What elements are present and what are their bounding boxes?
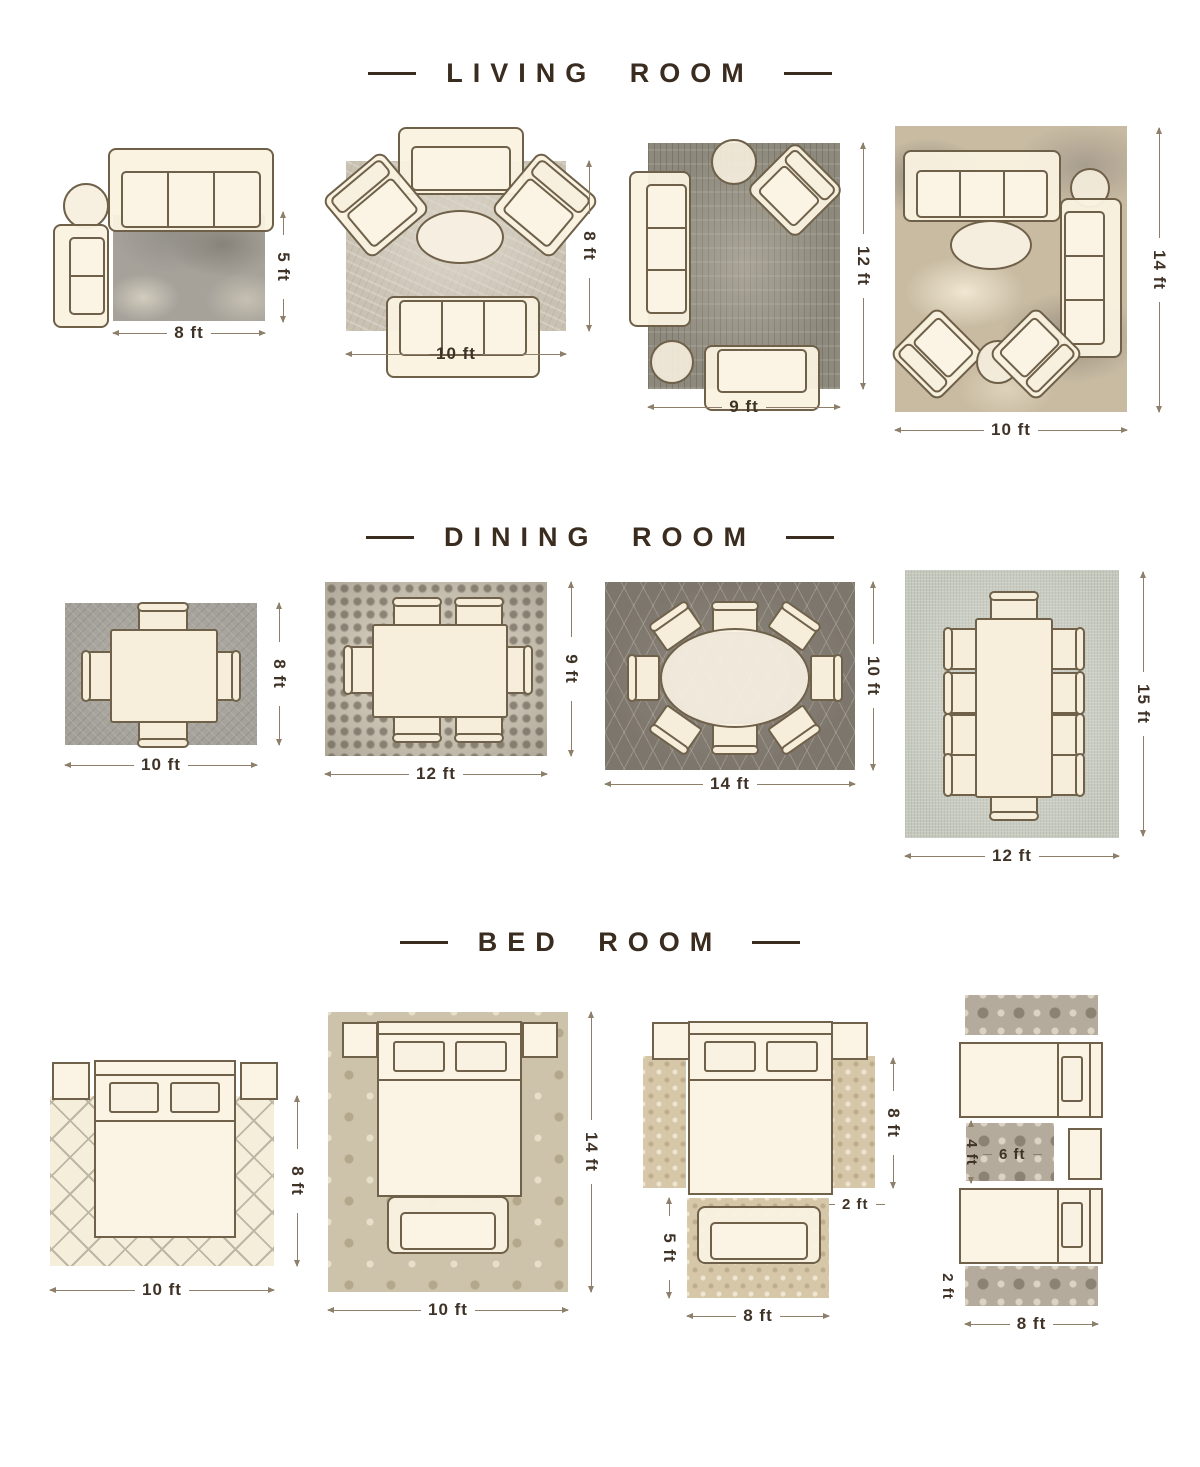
br1-queen-bed xyxy=(94,1060,236,1238)
dr2-dining-table xyxy=(372,624,508,718)
br3-foot-rug-height-dimension: 5 ft xyxy=(658,1198,680,1298)
lr1-two-seat-sofa xyxy=(53,224,109,328)
lr3-width-dimension: 9 ft xyxy=(648,397,840,417)
dr1-dining-table xyxy=(110,629,218,723)
br4-runner-length-dimension: 8 ft xyxy=(965,1314,1098,1334)
dr3-width-dimension: 14 ft xyxy=(605,774,855,794)
br2-height-dimension: 14 ft xyxy=(580,1012,602,1292)
lr4-width-dimension: 10 ft xyxy=(895,420,1127,440)
br3-runner-length-dimension: 8 ft xyxy=(882,1058,904,1188)
dr2-height-dimension: 9 ft xyxy=(560,582,582,756)
lr2-oval-coffee-table xyxy=(416,210,504,264)
br4-twin-bed-bottom xyxy=(959,1188,1103,1264)
lr4-oval-coffee-table xyxy=(950,220,1032,270)
br2-nightstand-right xyxy=(522,1022,558,1058)
title-dash xyxy=(368,72,416,75)
lr2-loveseat xyxy=(398,127,524,195)
lr2-three-seat-sofa xyxy=(386,296,540,378)
lr4-height-dimension: 14 ft xyxy=(1148,128,1170,412)
dr4-width-dimension: 12 ft xyxy=(905,846,1119,866)
br3-side-runner-left xyxy=(643,1056,686,1188)
br3-queen-bed xyxy=(688,1021,833,1195)
dr4-dining-table xyxy=(975,618,1053,798)
br1-height-dimension: 8 ft xyxy=(286,1096,308,1266)
br2-width-dimension: 10 ft xyxy=(328,1300,568,1320)
bed-room-title-row: BED ROOM xyxy=(0,927,1200,958)
br4-between-rug-width-dimension: 6 ft xyxy=(983,1146,1049,1163)
rug-size-guide: LIVING ROOM 8 ft 5 ft 10 ft 8 ft 9 ft 12… xyxy=(0,0,1200,1467)
br2-nightstand-left xyxy=(342,1022,378,1058)
br1-width-dimension: 10 ft xyxy=(50,1280,274,1300)
br3-foot-rug-width-dimension: 8 ft xyxy=(687,1306,829,1326)
lr3-round-side-table-top xyxy=(711,139,757,185)
br3-bench xyxy=(697,1206,821,1264)
title-dash xyxy=(752,941,800,944)
section-title-bed-room: BED ROOM xyxy=(478,927,723,958)
lr1-width-dimension: 8 ft xyxy=(113,323,265,343)
br4-nightstand xyxy=(1068,1128,1102,1180)
lr1-height-dimension: 5 ft xyxy=(272,212,294,322)
dr4-height-dimension: 15 ft xyxy=(1132,572,1154,836)
br4-runner-width-dimension: 2 ft xyxy=(936,1262,958,1310)
dr3-chair-left xyxy=(632,655,660,701)
living-room-title-row: LIVING ROOM xyxy=(0,58,1200,89)
title-dash xyxy=(366,536,414,539)
br2-bench xyxy=(387,1196,509,1254)
title-dash xyxy=(400,941,448,944)
lr4-three-seat-sofa-right xyxy=(1060,198,1122,358)
lr2-height-dimension: 8 ft xyxy=(578,161,600,331)
br4-twin-bed-top xyxy=(959,1042,1103,1118)
section-title-dining-room: DINING ROOM xyxy=(444,522,756,553)
lr3-height-dimension: 12 ft xyxy=(852,143,874,389)
lr3-round-side-table-bottom xyxy=(650,340,694,384)
lr1-three-seat-sofa xyxy=(108,148,274,232)
dr3-oval-dining-table xyxy=(660,628,810,728)
br3-nightstand-right xyxy=(830,1022,868,1060)
br3-side-runner-right xyxy=(832,1056,875,1188)
br1-nightstand-left xyxy=(52,1062,90,1100)
br4-between-rug-height-dimension: 4 ft xyxy=(960,1121,982,1183)
dr2-width-dimension: 12 ft xyxy=(325,764,547,784)
lr2-width-dimension: 10 ft xyxy=(346,344,566,364)
lr4-three-seat-sofa-top xyxy=(903,150,1061,222)
br1-nightstand-right xyxy=(240,1062,278,1100)
dr3-height-dimension: 10 ft xyxy=(862,582,884,770)
dr3-chair-right xyxy=(810,655,838,701)
dr1-width-dimension: 10 ft xyxy=(65,755,257,775)
section-title-living-room: LIVING ROOM xyxy=(446,58,754,89)
br3-runner-width-dimension: 2 ft xyxy=(826,1196,884,1213)
dining-room-title-row: DINING ROOM xyxy=(0,522,1200,553)
dr1-height-dimension: 8 ft xyxy=(268,603,290,745)
br2-queen-bed xyxy=(377,1021,522,1197)
title-dash xyxy=(784,72,832,75)
br4-runner-top xyxy=(965,995,1098,1035)
lr1-round-side-table xyxy=(63,183,109,229)
title-dash xyxy=(786,536,834,539)
br3-nightstand-left xyxy=(652,1022,690,1060)
lr3-three-seat-sofa xyxy=(629,171,691,327)
br4-runner-bottom xyxy=(965,1266,1098,1306)
